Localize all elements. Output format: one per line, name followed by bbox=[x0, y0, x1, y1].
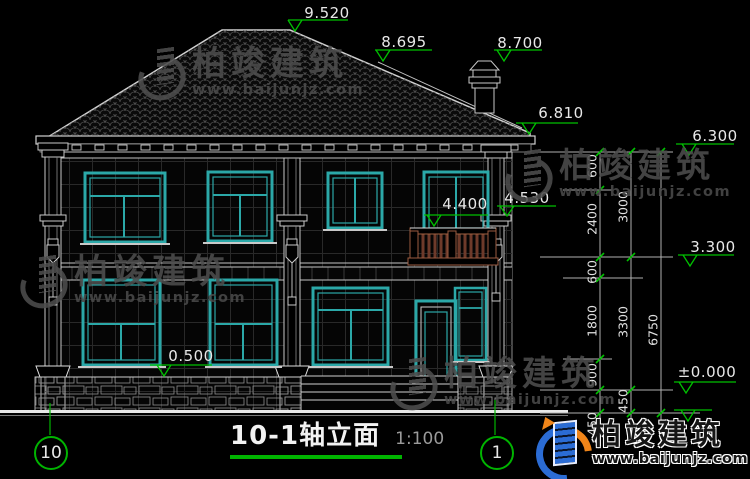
elevation-sheet: 9.5208.6958.7006.8106.3004.5304.4003.300… bbox=[0, 0, 750, 479]
dimension-label: 3000 bbox=[616, 191, 631, 223]
company-name: 柏竣建筑 bbox=[592, 417, 748, 451]
dimension-label: 2400 bbox=[585, 203, 600, 235]
window-3 bbox=[323, 173, 387, 230]
roof bbox=[48, 30, 530, 137]
eave-cornice bbox=[36, 136, 535, 158]
level-label: 4.530 bbox=[504, 189, 549, 207]
dimension-label: 6750 bbox=[646, 314, 661, 346]
level-label: 9.520 bbox=[304, 4, 349, 22]
dimension-label: 3300 bbox=[616, 306, 631, 338]
dimension-label: 900 bbox=[585, 363, 600, 387]
company-logo-icon bbox=[533, 417, 589, 475]
drawing-scale: 1:100 bbox=[395, 429, 444, 449]
dimension-label: 1800 bbox=[585, 305, 600, 337]
dimension-label: 600 bbox=[585, 260, 600, 284]
dimension-label: 450 bbox=[616, 389, 631, 413]
ground-line bbox=[0, 412, 568, 416]
elevation-drawing bbox=[0, 0, 750, 479]
level-label: 4.400 bbox=[442, 195, 487, 213]
level-label: 0.500 bbox=[168, 347, 213, 365]
balcony-railing bbox=[408, 228, 498, 265]
company-logo: 柏竣建筑 www.baijunjz.com bbox=[533, 417, 748, 475]
company-website: www.baijunjz.com bbox=[592, 451, 748, 467]
drawing-title: 10-1轴立面 bbox=[230, 420, 380, 452]
axis-bubble-10: 10 bbox=[34, 436, 68, 470]
level-label: ±0.000 bbox=[678, 363, 737, 381]
chimney bbox=[469, 61, 500, 113]
level-label: 6.300 bbox=[692, 127, 737, 145]
level-label: 3.300 bbox=[690, 238, 735, 256]
level-label: 8.700 bbox=[497, 34, 542, 52]
axis-bubble-1: 1 bbox=[480, 436, 514, 470]
title-block: 10-1轴立面 1:100 bbox=[230, 420, 444, 452]
entry-steps bbox=[301, 376, 458, 411]
title-underline bbox=[230, 455, 402, 459]
level-label: 8.695 bbox=[381, 33, 426, 51]
level-label: 6.810 bbox=[538, 104, 583, 122]
dimension-label: 600 bbox=[585, 154, 600, 178]
